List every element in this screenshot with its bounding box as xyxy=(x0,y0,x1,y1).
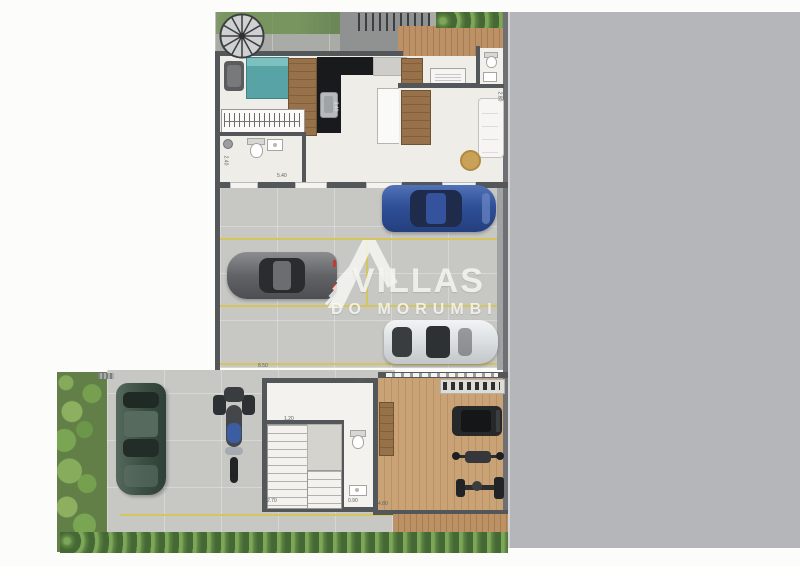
dimension-label: 5.40 xyxy=(277,174,287,179)
bed xyxy=(246,57,289,99)
wall xyxy=(302,132,306,186)
shower-head-icon xyxy=(223,139,233,149)
sideboard xyxy=(401,90,431,145)
ottoman xyxy=(460,150,481,171)
treadmill xyxy=(452,406,502,436)
toilet-bowl xyxy=(486,56,497,68)
dimension-label: 2.40 xyxy=(222,156,227,166)
dimension-label: 2.50 xyxy=(350,52,360,57)
dimension-label: 2.80 xyxy=(496,92,501,102)
armchair xyxy=(224,61,244,91)
dimension-label: 3.50 xyxy=(355,380,365,385)
sofa xyxy=(478,98,504,158)
dimension-label: 8.50 xyxy=(258,364,268,369)
gym-bench xyxy=(379,402,394,456)
watermark-line2: DO MORUMBI xyxy=(331,301,498,319)
gym-door-markers xyxy=(386,373,498,377)
dimension-label: 3.40 xyxy=(332,102,337,112)
sink xyxy=(483,72,497,82)
dumbbell-rack xyxy=(440,379,505,394)
exercise-machine xyxy=(456,476,504,502)
hedge-row xyxy=(60,532,508,553)
dimension-label: 2.80 xyxy=(320,52,330,57)
car-green xyxy=(116,383,166,495)
moto-top-case xyxy=(224,387,244,402)
stairs-landing xyxy=(307,424,342,472)
car-blue xyxy=(382,185,496,232)
moto-side-case xyxy=(242,395,255,415)
moto-front-wheel xyxy=(230,457,238,483)
moto-tank xyxy=(227,423,241,443)
dimension-label: 2.70 xyxy=(267,499,277,504)
weight-bench xyxy=(454,446,502,468)
car-glass xyxy=(392,327,412,357)
refrigerator xyxy=(377,88,401,144)
sink xyxy=(267,139,283,151)
parking-line xyxy=(120,514,393,516)
closet-hangers xyxy=(224,113,300,127)
stairs-flight-a xyxy=(267,424,309,509)
spiral-staircase xyxy=(219,13,265,59)
dimension-label: 4.80 xyxy=(378,502,388,507)
car-white xyxy=(384,320,498,364)
lot-edge-line xyxy=(508,12,510,548)
upper-hedge xyxy=(436,12,503,28)
dimension-label: 0.90 xyxy=(348,499,358,504)
motorcycle xyxy=(213,387,255,487)
garden-strip xyxy=(57,372,107,552)
car-glass xyxy=(123,439,159,457)
toilet-bowl xyxy=(250,143,263,158)
floor-plan: VILLAS DO MORUMBI xyxy=(0,0,800,566)
toilet-bowl xyxy=(352,435,364,449)
stairs-flight-b xyxy=(307,470,342,509)
moto-windshield xyxy=(225,447,243,455)
bed-pillows xyxy=(247,58,288,66)
drain-grate xyxy=(98,373,114,379)
wall xyxy=(220,132,306,136)
closet xyxy=(221,109,305,134)
watermark-line1: VILLAS xyxy=(352,262,485,301)
sink xyxy=(349,485,367,496)
car-glass xyxy=(123,392,159,408)
car-sunroof xyxy=(426,326,450,358)
dimension-label: 1.20 xyxy=(284,417,294,422)
vacant-lot xyxy=(510,12,800,548)
